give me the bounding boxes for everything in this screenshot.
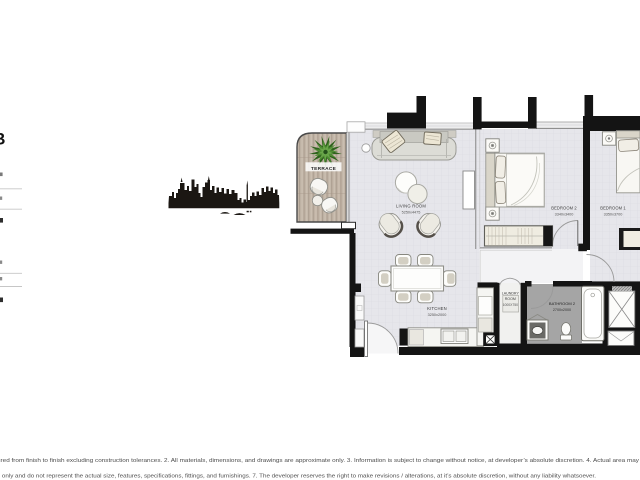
svg-text:3340x3400: 3340x3400 <box>555 212 574 216</box>
svg-text:B: B <box>0 131 6 149</box>
svg-text:KITCHEN: KITCHEN <box>427 306 447 311</box>
svg-text:s only and do not represent th: s only and do not represent the actual s… <box>0 473 596 479</box>
svg-text:BEDROOM 2: BEDROOM 2 <box>551 206 577 211</box>
svg-text:ured from finish to finish exc: ured from finish to finish excluding con… <box>0 458 639 464</box>
svg-text:1000X750: 1000X750 <box>503 303 519 307</box>
svg-text:BATHROOM 2: BATHROOM 2 <box>549 301 576 306</box>
svg-text:3350x3700: 3350x3700 <box>604 212 623 216</box>
svg-text:LAUNDRY: LAUNDRY <box>502 292 520 296</box>
svg-text:3250x2000: 3250x2000 <box>428 313 447 317</box>
svg-text:5250x4475: 5250x4475 <box>402 210 421 214</box>
svg-text:TERRACE: TERRACE <box>311 166 337 172</box>
svg-text:LIVING ROOM: LIVING ROOM <box>396 204 426 209</box>
svg-text:BEDROOM 1: BEDROOM 1 <box>600 206 626 211</box>
svg-text:2700x2000: 2700x2000 <box>553 308 571 312</box>
svg-text:ROOM: ROOM <box>505 297 516 301</box>
